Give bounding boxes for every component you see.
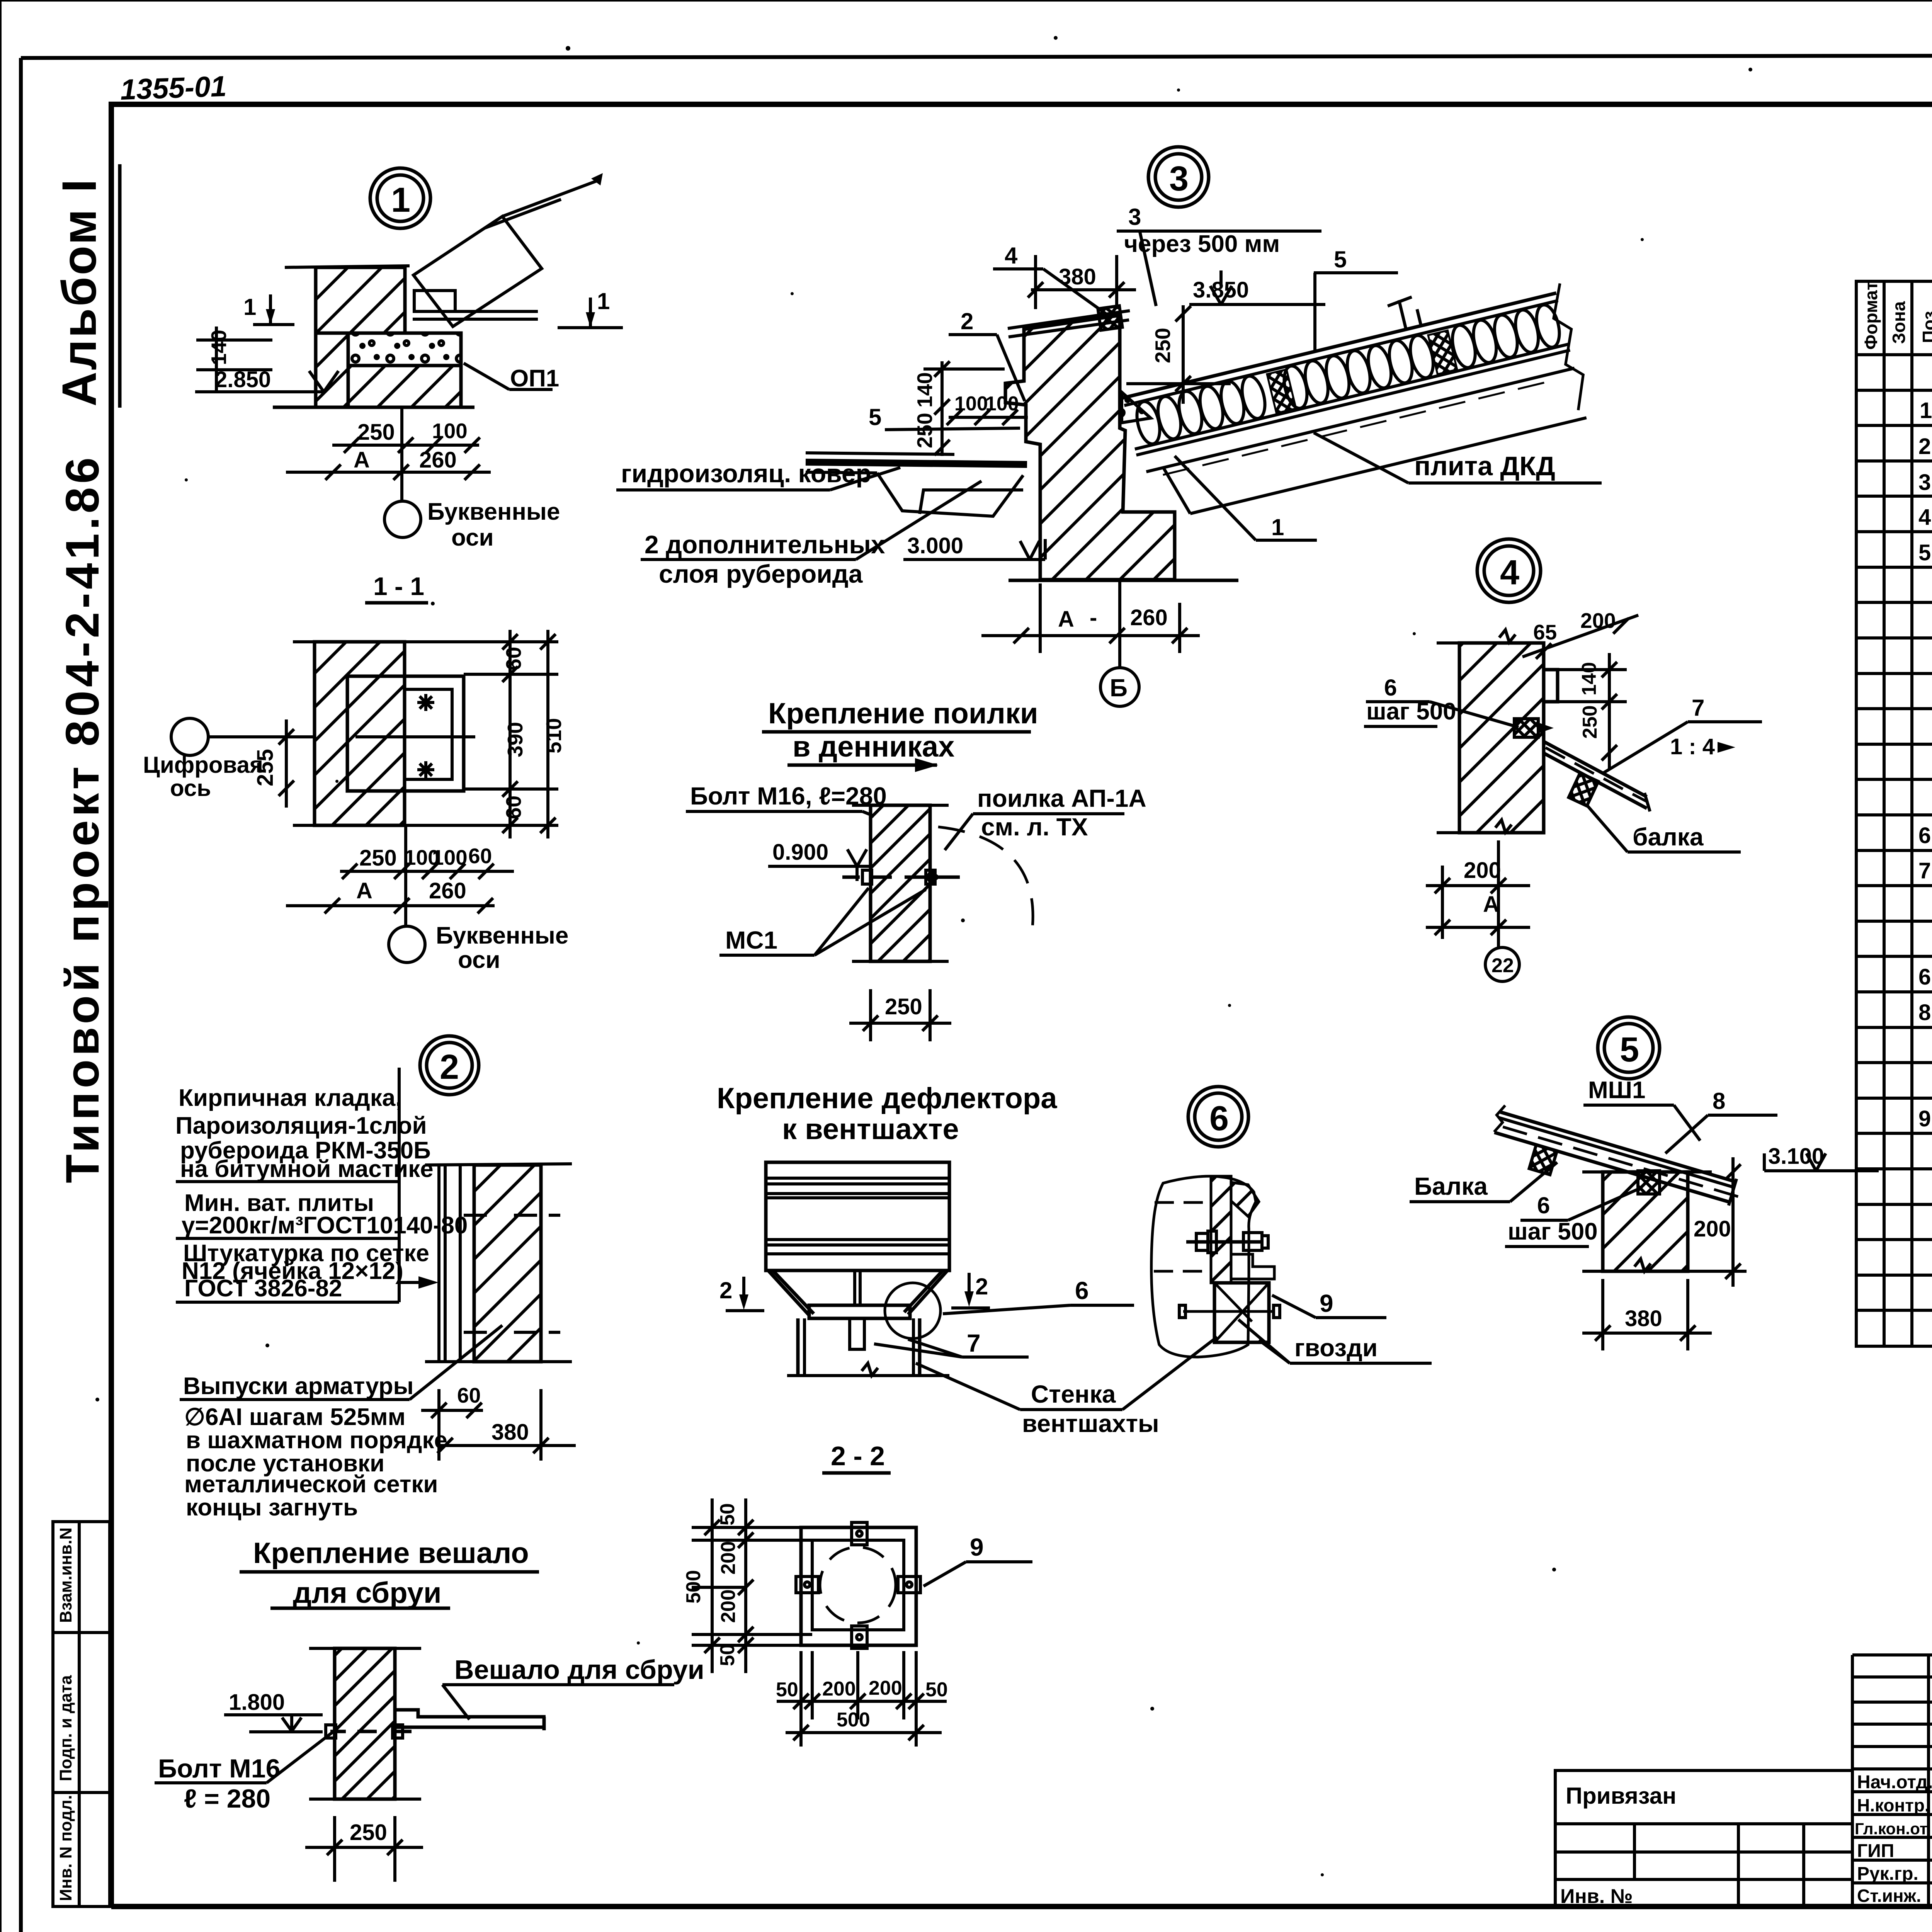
svg-text:вентшахты: вентшахты: [1022, 1410, 1159, 1437]
svg-text:140: 140: [913, 372, 937, 408]
svg-text:3: 3: [1128, 204, 1141, 230]
svg-text:ОП1: ОП1: [510, 365, 559, 392]
svg-text:Формат: Формат: [1861, 282, 1881, 350]
svg-text:50: 50: [716, 1644, 739, 1666]
svg-text:7: 7: [1918, 858, 1931, 883]
svg-text:65: 65: [1533, 620, 1557, 644]
svg-text:1: 1: [1920, 398, 1932, 423]
svg-text:60: 60: [468, 844, 492, 868]
svg-text:Крепление вешало: Крепление вешало: [253, 1537, 529, 1570]
svg-text:140: 140: [207, 330, 231, 365]
svg-text:шаг 500: шаг 500: [1366, 698, 1456, 725]
svg-text:250: 250: [885, 994, 922, 1019]
svg-text:4: 4: [1500, 553, 1519, 592]
svg-text:Привязан: Привязан: [1566, 1783, 1676, 1809]
svg-text:2: 2: [961, 308, 973, 334]
svg-text:100: 100: [432, 419, 468, 443]
svg-text:380: 380: [1059, 264, 1096, 289]
svg-text:9: 9: [1320, 1289, 1333, 1317]
svg-text:7: 7: [967, 1329, 981, 1357]
svg-text:ГИП: ГИП: [1857, 1841, 1894, 1861]
svg-text:7: 7: [1692, 695, 1704, 721]
svg-text:390: 390: [503, 722, 527, 757]
svg-text:510: 510: [542, 718, 566, 753]
svg-text:5: 5: [1918, 540, 1931, 565]
svg-text:см. л. ТХ: см. л. ТХ: [981, 813, 1088, 841]
svg-text:Болт М16: Болт М16: [158, 1754, 280, 1783]
svg-text:балка: балка: [1633, 823, 1704, 851]
svg-text:2: 2: [975, 1274, 988, 1299]
svg-text:γ=200кг/м³ГОСТ10140-80: γ=200кг/м³ГОСТ10140-80: [182, 1212, 468, 1239]
svg-text:-: -: [1090, 605, 1097, 630]
svg-text:Кирпичная кладка,: Кирпичная кладка,: [179, 1085, 402, 1111]
svg-text:6: 6: [1209, 1099, 1229, 1138]
svg-text:Буквенные: Буквенные: [427, 498, 560, 525]
svg-text:Гл.кон.от.: Гл.кон.от.: [1855, 1820, 1930, 1838]
svg-text:в шахматном порядке: в шахматном порядке: [186, 1427, 447, 1454]
svg-text:250: 250: [913, 413, 937, 448]
svg-text:260: 260: [419, 447, 457, 473]
svg-text:2.850: 2.850: [215, 367, 271, 392]
svg-text:255: 255: [253, 749, 278, 786]
svg-text:5: 5: [1620, 1031, 1639, 1069]
svg-text:МС1: МС1: [725, 926, 777, 954]
svg-text:Вешало для сбруи: Вешало для сбруи: [454, 1655, 704, 1685]
svg-text:60: 60: [502, 796, 526, 819]
svg-text:А: А: [356, 878, 372, 903]
svg-text:Выпуски арматуры: Выпуски арматуры: [183, 1373, 413, 1400]
svg-text:250: 250: [350, 1820, 387, 1845]
svg-text:Цифровая: Цифровая: [143, 752, 263, 778]
svg-text:Типовой проект 804-2-41.86: Типовой проект 804-2-41.86: [56, 454, 109, 1183]
svg-text:2: 2: [719, 1277, 732, 1303]
svg-text:1: 1: [1271, 514, 1284, 540]
svg-text:250: 250: [1151, 328, 1175, 363]
svg-text:260: 260: [429, 878, 466, 903]
svg-text:Крепление дефлектора: Крепление дефлектора: [717, 1082, 1057, 1115]
svg-text:50: 50: [716, 1503, 739, 1526]
svg-text:1: 1: [391, 181, 410, 219]
svg-text:500: 500: [682, 1570, 705, 1604]
svg-text:концы загнуть: концы загнуть: [186, 1494, 358, 1521]
svg-text:1 - 1: 1 - 1: [373, 572, 424, 600]
svg-text:А: А: [354, 447, 370, 473]
svg-text:Взам.инв.N: Взам.инв.N: [56, 1527, 75, 1623]
svg-text:380: 380: [1625, 1306, 1662, 1331]
svg-text:100: 100: [432, 845, 468, 869]
svg-text:Буквенные: Буквенные: [436, 922, 568, 949]
svg-text:А: А: [1483, 892, 1499, 917]
svg-text:60: 60: [457, 1383, 481, 1407]
svg-text:2 - 2: 2 - 2: [831, 1441, 885, 1471]
svg-text:Б: Б: [1110, 674, 1128, 702]
svg-text:50: 50: [925, 1679, 948, 1701]
svg-text:22: 22: [1492, 954, 1514, 977]
svg-text:50: 50: [776, 1679, 798, 1701]
svg-text:ось: ось: [170, 775, 211, 801]
svg-text:1: 1: [243, 294, 256, 320]
svg-text:1.800: 1.800: [229, 1690, 285, 1715]
svg-text:200: 200: [822, 1678, 856, 1700]
svg-text:4: 4: [1918, 505, 1931, 530]
svg-text:1: 1: [597, 288, 610, 314]
svg-text:ГОСТ 3826-82: ГОСТ 3826-82: [184, 1275, 342, 1302]
svg-text:6: 6: [1918, 823, 1931, 848]
svg-text:в денниках: в денниках: [793, 730, 954, 763]
svg-text:Подп. и дата: Подп. и дата: [56, 1675, 75, 1781]
svg-text:1 : 4: 1 : 4: [1670, 734, 1715, 759]
svg-text:к вентшахте: к вентшахте: [782, 1113, 959, 1146]
svg-text:Инв. N подл.: Инв. N подл.: [56, 1795, 75, 1901]
svg-text:Ст.инж.: Ст.инж.: [1857, 1886, 1921, 1906]
svg-text:260: 260: [1130, 605, 1168, 630]
svg-text:Нач.отд.: Нач.отд.: [1857, 1772, 1932, 1793]
svg-text:200: 200: [717, 1541, 740, 1575]
svg-text:140: 140: [1578, 662, 1600, 696]
svg-text:гидроизоляц. ковер: гидроизоляц. ковер: [621, 459, 871, 488]
svg-text:∅6АI шагам 525мм: ∅6АI шагам 525мм: [184, 1404, 405, 1430]
svg-text:250: 250: [1579, 705, 1601, 739]
svg-text:поилка АП-1А: поилка АП-1А: [977, 784, 1146, 812]
svg-text:200: 200: [869, 1677, 902, 1699]
svg-text:6: 6: [1075, 1277, 1089, 1304]
svg-text:6: 6: [1384, 675, 1397, 701]
svg-text:2: 2: [440, 1048, 459, 1087]
svg-text:500: 500: [837, 1709, 870, 1731]
svg-text:5: 5: [869, 404, 881, 430]
svg-text:плита ДКД: плита ДКД: [1414, 451, 1555, 481]
svg-text:3: 3: [1169, 160, 1189, 198]
svg-text:380: 380: [492, 1420, 529, 1445]
svg-text:200: 200: [1694, 1216, 1731, 1242]
svg-text:6: 6: [1537, 1192, 1550, 1218]
svg-text:Поз.: Поз.: [1919, 306, 1932, 343]
svg-text:60: 60: [502, 647, 526, 670]
svg-text:250: 250: [357, 420, 395, 445]
svg-text:Альбом I: Альбом I: [53, 178, 106, 406]
svg-text:Балка: Балка: [1414, 1172, 1488, 1200]
svg-text:Стенка: Стенка: [1031, 1380, 1116, 1408]
svg-text:2 дополнительных: 2 дополнительных: [645, 530, 885, 559]
svg-text:3.100: 3.100: [1768, 1144, 1824, 1169]
svg-text:2: 2: [1918, 434, 1931, 459]
svg-text:для сбруи: для сбруи: [293, 1577, 442, 1609]
svg-text:на битумной мастике: на битумной мастике: [180, 1156, 434, 1182]
svg-text:металлической сетки: металлической сетки: [184, 1471, 438, 1498]
svg-text:оси: оси: [451, 524, 494, 551]
svg-text:5: 5: [1334, 247, 1347, 272]
svg-text:0.900: 0.900: [772, 840, 828, 865]
svg-text:9: 9: [1918, 1106, 1931, 1131]
svg-text:Зона: Зона: [1889, 301, 1909, 344]
svg-text:Н.контр.: Н.контр.: [1857, 1795, 1930, 1815]
svg-text:3: 3: [1918, 470, 1931, 495]
svg-text:250: 250: [359, 845, 397, 871]
svg-text:МШ1: МШ1: [1588, 1077, 1645, 1104]
svg-text:4: 4: [1005, 243, 1018, 269]
svg-text:через 500 мм: через 500 мм: [1124, 231, 1280, 257]
svg-text:шаг 500: шаг 500: [1508, 1218, 1598, 1245]
svg-text:200: 200: [1464, 858, 1501, 883]
svg-text:ℓ = 280: ℓ = 280: [184, 1784, 270, 1813]
svg-text:Рук.гр.: Рук.гр.: [1857, 1864, 1918, 1884]
svg-text:Пароизоляция-1слой: Пароизоляция-1слой: [175, 1112, 427, 1139]
svg-text:гвозди: гвозди: [1294, 1334, 1378, 1362]
svg-text:200: 200: [717, 1589, 740, 1623]
svg-text:8: 8: [1918, 1000, 1931, 1025]
svg-text:оси: оси: [458, 947, 500, 973]
svg-text:9: 9: [970, 1533, 984, 1561]
svg-text:Крепление поилки: Крепление поилки: [768, 697, 1038, 730]
svg-text:8: 8: [1713, 1088, 1725, 1114]
svg-text:А: А: [1058, 607, 1074, 632]
svg-text:1355-01: 1355-01: [120, 70, 227, 106]
svg-text:слоя рубероида: слоя рубероида: [659, 560, 863, 588]
svg-text:6: 6: [1918, 964, 1931, 990]
svg-text:3.000: 3.000: [907, 533, 963, 558]
